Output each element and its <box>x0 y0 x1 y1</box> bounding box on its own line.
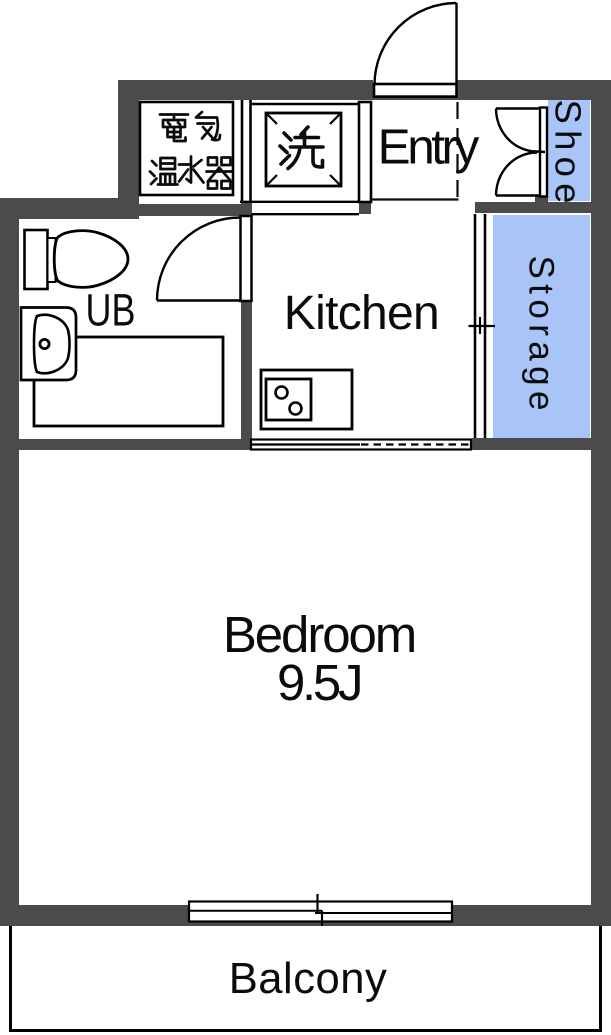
svg-text:UB: UB <box>86 285 136 336</box>
svg-text:9.5J: 9.5J <box>277 654 360 711</box>
svg-text:Entry: Entry <box>378 120 480 175</box>
svg-text:Kitchen: Kitchen <box>284 287 439 340</box>
svg-text:Balcony: Balcony <box>229 955 388 1003</box>
